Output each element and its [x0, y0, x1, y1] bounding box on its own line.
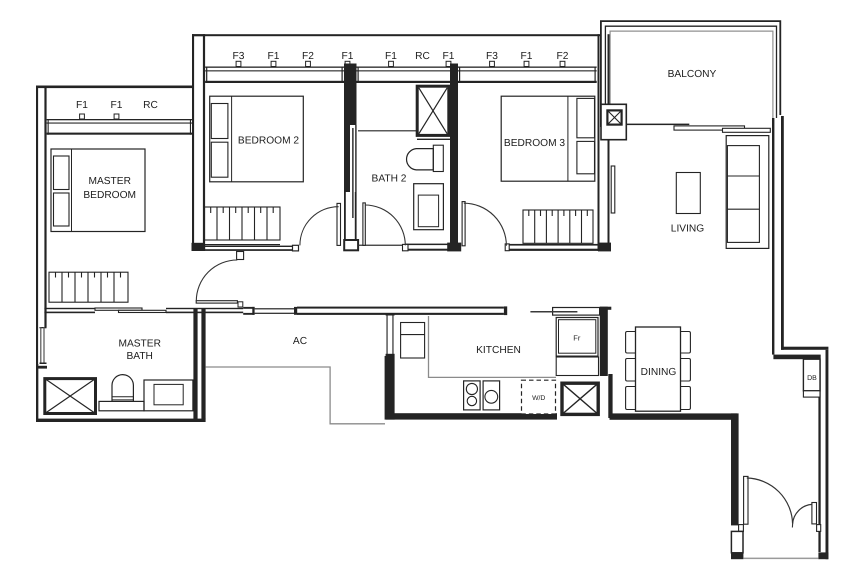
svg-text:DINING: DINING	[641, 367, 677, 378]
svg-text:MASTER: MASTER	[118, 339, 160, 350]
svg-text:F1: F1	[342, 51, 354, 62]
svg-text:BATH 2: BATH 2	[372, 174, 407, 185]
svg-text:F2: F2	[557, 51, 569, 62]
svg-text:RC: RC	[143, 100, 158, 111]
svg-text:KITCHEN: KITCHEN	[476, 345, 521, 356]
svg-text:F1: F1	[443, 51, 455, 62]
svg-text:F3: F3	[486, 51, 498, 62]
svg-text:BATH: BATH	[126, 351, 152, 362]
svg-text:AC: AC	[293, 336, 307, 347]
svg-text:F1: F1	[111, 100, 123, 111]
svg-text:F3: F3	[233, 51, 245, 62]
svg-text:RC: RC	[415, 51, 430, 62]
svg-text:F1: F1	[385, 51, 397, 62]
svg-text:Fr: Fr	[573, 334, 581, 343]
svg-text:BEDROOM: BEDROOM	[83, 190, 136, 201]
svg-text:BEDROOM 3: BEDROOM 3	[504, 138, 565, 149]
svg-text:F1: F1	[76, 100, 88, 111]
svg-text:DB: DB	[807, 375, 817, 382]
svg-text:W/D: W/D	[532, 395, 545, 402]
svg-text:F1: F1	[268, 51, 280, 62]
svg-text:BALCONY: BALCONY	[668, 69, 717, 80]
svg-text:LIVING: LIVING	[671, 224, 704, 235]
svg-text:BEDROOM 2: BEDROOM 2	[238, 136, 299, 147]
svg-text:MASTER: MASTER	[88, 176, 130, 187]
svg-text:F2: F2	[302, 51, 314, 62]
svg-text:F1: F1	[521, 51, 533, 62]
